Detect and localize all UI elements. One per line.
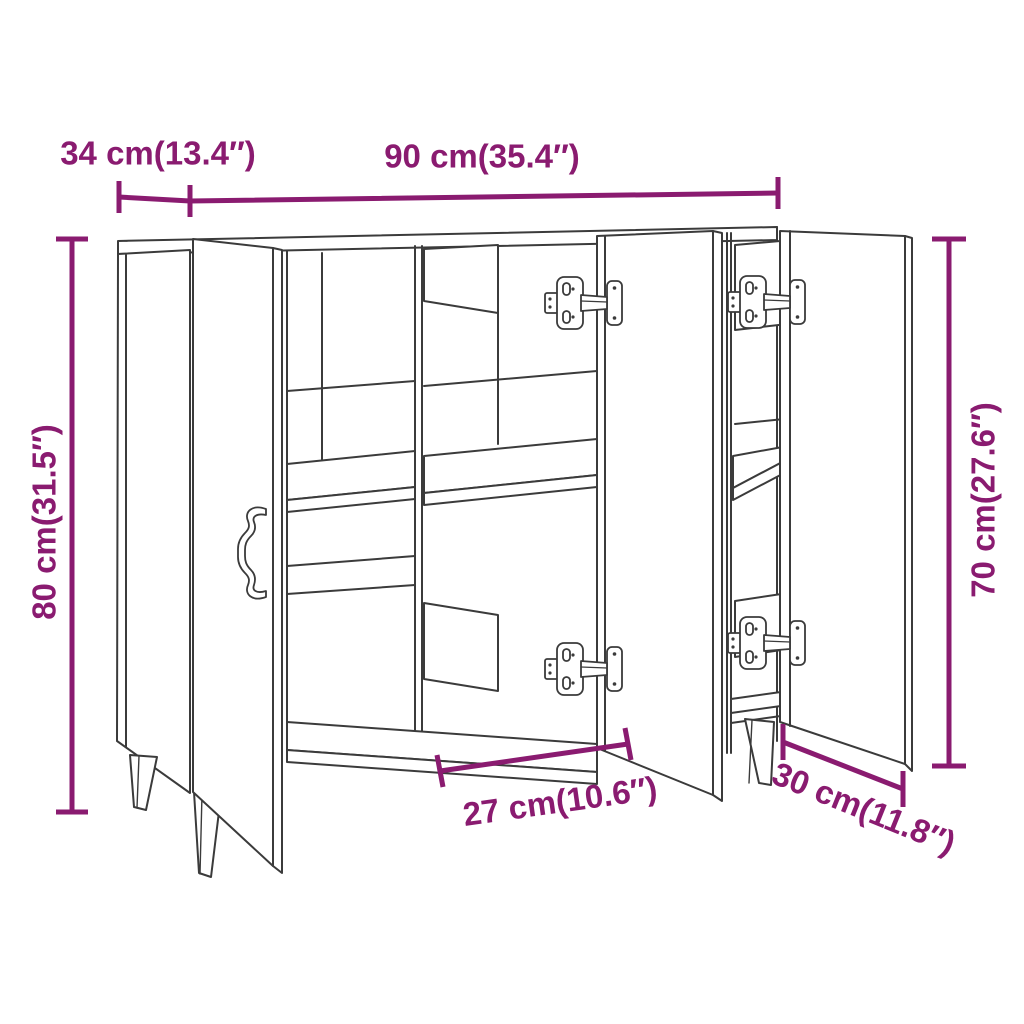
- leg-front-left: [130, 755, 157, 810]
- hinge-right-bottom: [728, 617, 805, 669]
- middle-back-panel-top: [424, 245, 498, 313]
- dimension-diagram: 34 cm(13.4″) 90 cm(35.4″) 80 cm(31.5″) 7…: [0, 0, 1024, 1024]
- height-total-label: 80 cm(31.5″): [26, 424, 63, 620]
- top-dimension-line: [119, 193, 778, 201]
- left-door-open: [193, 239, 282, 873]
- sideboard-line-drawing: 34 cm(13.4″) 90 cm(35.4″) 80 cm(31.5″) 7…: [0, 0, 1024, 1024]
- depth-label: 34 cm(13.4″): [60, 135, 256, 172]
- hinge-right-top: [728, 276, 805, 328]
- left-side-panel: [117, 250, 190, 793]
- hinge-middle-bottom: [545, 643, 622, 695]
- hinge-middle-top: [545, 277, 622, 329]
- middle-back-panel-bottom: [424, 603, 498, 691]
- door-width-label: 30 cm(11.8″): [767, 755, 961, 862]
- height-body-label: 70 cm(27.6″): [965, 402, 1002, 598]
- width-label: 90 cm(35.4″): [384, 138, 580, 175]
